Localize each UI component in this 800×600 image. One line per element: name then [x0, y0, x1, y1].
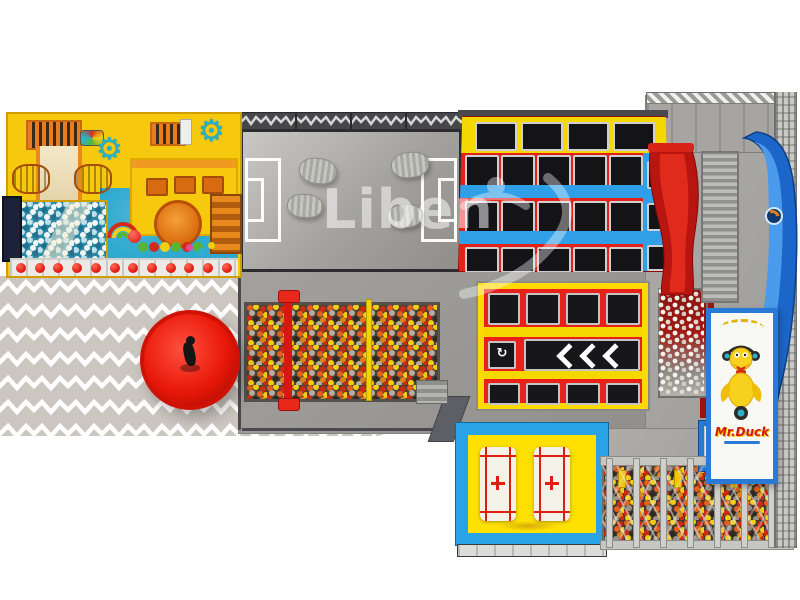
trampoline-mat [521, 122, 563, 151]
banner-subtitle-bar [724, 441, 760, 444]
yellow-pole [366, 299, 372, 401]
castle-window [174, 176, 196, 194]
kids-ball-pit [18, 200, 108, 262]
interactive-wall-panel [2, 196, 22, 262]
joust-beam [284, 296, 292, 406]
roller-cylinder [74, 164, 112, 194]
gear-icon: ⚙ [96, 132, 123, 167]
trampoline-mat [526, 383, 560, 405]
joust-beam-pad [278, 290, 300, 303]
joust-beam-pad [278, 398, 300, 411]
play-ball [208, 242, 215, 249]
spinner-ride [140, 310, 240, 410]
duck-mascot-icon [719, 340, 765, 424]
pro-trampoline-mat [480, 447, 516, 521]
play-ball [186, 244, 193, 251]
banner-arc-text-decor [720, 319, 764, 338]
tumbling-lane [524, 339, 640, 371]
trampoline-mat [609, 155, 643, 187]
roller-cylinder [12, 164, 50, 194]
trampoline-mat [606, 383, 640, 405]
jumper-watermark-icon [452, 170, 582, 300]
red-slide-entry [648, 143, 694, 152]
yellow-padding-band [484, 371, 642, 379]
trampoline-mat [475, 122, 517, 151]
trampoline-mat [609, 201, 643, 233]
castle-tower [154, 200, 202, 248]
pro-trampoline-room [455, 422, 609, 546]
yellow-padding-band [484, 327, 642, 337]
chevron-arrows-icon [560, 347, 629, 369]
castle-window [146, 178, 168, 196]
castle-window [202, 176, 224, 194]
spinner-hub [186, 336, 195, 345]
staircase [702, 152, 738, 302]
trampoline-mat [606, 293, 640, 325]
pro-trampoline-mat [534, 447, 570, 521]
gear-icon: ⚙ [198, 114, 225, 149]
spinner-arm-shadow [180, 364, 200, 372]
foam-obstacle [286, 193, 324, 219]
indoor-playground-render: Liben ⚙ ⚙ [0, 0, 800, 600]
floor-stain [498, 521, 558, 531]
pro-room-platform [457, 544, 607, 557]
trampoline-mat [609, 247, 643, 273]
truss-post [606, 458, 613, 548]
fence-post-caps [16, 263, 232, 273]
banner-title: Mr.Duck [711, 425, 773, 439]
floor-trampoline-zone: ↻ [478, 283, 648, 409]
play-ball [198, 248, 205, 255]
center-ball-pit [244, 302, 440, 402]
floor-edge-wall [242, 428, 454, 431]
trampoline-mat [566, 383, 600, 405]
mini-mat-spin-glyph: ↻ [488, 341, 516, 369]
goal-inner-left [245, 178, 264, 222]
trampoline-mat [567, 122, 609, 151]
trampoline-mat [488, 383, 520, 405]
truss-bottom-chord [600, 540, 794, 550]
caterpillar-toy [138, 242, 203, 252]
floor-steps [416, 380, 448, 404]
divider-board [180, 119, 192, 145]
truss-post [633, 458, 640, 548]
duck-banner: Mr.Duck [706, 308, 778, 484]
kids-softplay-zone: ⚙ ⚙ [6, 112, 242, 278]
